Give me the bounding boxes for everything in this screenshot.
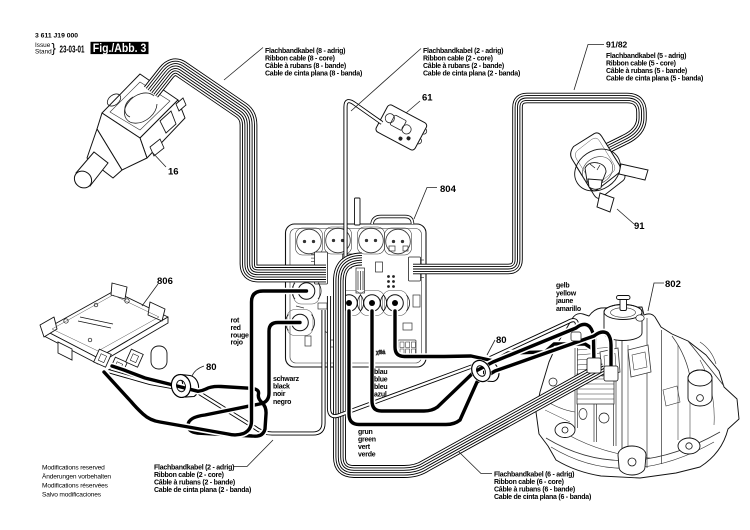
svg-text:black: black bbox=[273, 384, 290, 391]
svg-text:802: 802 bbox=[665, 279, 681, 290]
svg-text:Câble à rubans (5 - bande): Câble à rubans (5 - bande) bbox=[606, 68, 687, 75]
svg-text:blue: blue bbox=[374, 377, 388, 384]
svg-text:verde: verde bbox=[358, 452, 376, 459]
svg-text:Flachbandkabel (6 - adrig): Flachbandkabel (6 - adrig) bbox=[494, 472, 574, 479]
svg-text:Câble à rubans (2 - bande): Câble à rubans (2 - bande) bbox=[154, 480, 235, 487]
svg-text:Cable de cinta plana (5 - band: Cable de cinta plana (5 - banda) bbox=[606, 76, 703, 83]
svg-text:rot: rot bbox=[231, 318, 241, 325]
svg-text:Fig./Abb. 3: Fig./Abb. 3 bbox=[93, 43, 147, 55]
svg-text:80: 80 bbox=[206, 362, 217, 373]
svg-text:grun: grun bbox=[358, 429, 373, 436]
svg-text:jaune: jaune bbox=[555, 298, 573, 305]
svg-text:azul: azul bbox=[374, 392, 387, 399]
svg-text:vert: vert bbox=[358, 444, 371, 451]
svg-text:3 611 J19 000: 3 611 J19 000 bbox=[35, 33, 78, 40]
svg-text:80: 80 bbox=[496, 335, 507, 346]
svg-text:16: 16 bbox=[168, 167, 179, 178]
svg-text:Modifications reserved: Modifications reserved bbox=[42, 465, 105, 472]
svg-text:Flachbandkabel (5 - adrig): Flachbandkabel (5 - adrig) bbox=[606, 53, 686, 60]
svg-text:bleu: bleu bbox=[374, 384, 387, 391]
svg-text:red: red bbox=[231, 325, 241, 332]
svg-text:91: 91 bbox=[634, 221, 645, 232]
svg-text:χfŝȧ: χfŝȧ bbox=[376, 350, 386, 356]
svg-text:Ribbon cable (5 - core): Ribbon cable (5 - core) bbox=[606, 61, 676, 68]
svg-text:Ribbon cable (2 - core): Ribbon cable (2 - core) bbox=[154, 472, 224, 479]
svg-text:schwarz: schwarz bbox=[273, 376, 300, 383]
svg-text:91/82: 91/82 bbox=[606, 40, 628, 50]
svg-text:Flachbandkabel (8 - adrig): Flachbandkabel (8 - adrig) bbox=[265, 48, 345, 55]
svg-text:green: green bbox=[358, 437, 376, 444]
svg-text:rojo: rojo bbox=[231, 340, 243, 347]
svg-text:noir: noir bbox=[273, 391, 286, 398]
svg-text:804: 804 bbox=[440, 184, 457, 195]
svg-text:Ribbon cable (2 - core): Ribbon cable (2 - core) bbox=[423, 56, 493, 63]
svg-text:Flachbandkabel (2 - adrig): Flachbandkabel (2 - adrig) bbox=[423, 48, 503, 55]
svg-text:Cable de cinta plana (2 - band: Cable de cinta plana (2 - banda) bbox=[423, 71, 520, 78]
svg-text:Änderungen vorbehalten: Änderungen vorbehalten bbox=[42, 473, 111, 481]
svg-text:Cable de cinta plana (6 - band: Cable de cinta plana (6 - banda) bbox=[494, 494, 591, 501]
svg-text:Câble à rubans (8 - bande): Câble à rubans (8 - bande) bbox=[265, 63, 346, 70]
svg-text:yellow: yellow bbox=[556, 290, 577, 297]
svg-text:806: 806 bbox=[157, 276, 173, 287]
svg-text:Stand: Stand bbox=[35, 49, 52, 56]
svg-text:}: } bbox=[52, 41, 57, 56]
svg-text:Flachbandkabel (2 - adrig): Flachbandkabel (2 - adrig) bbox=[154, 465, 234, 472]
svg-text:23-03-01: 23-03-01 bbox=[60, 43, 85, 55]
svg-text:rouge: rouge bbox=[231, 332, 250, 339]
svg-text:Câble à rubans (2 - bande): Câble à rubans (2 - bande) bbox=[423, 63, 504, 70]
svg-text:Cable de cinta plana (8 - band: Cable de cinta plana (8 - banda) bbox=[265, 71, 362, 78]
svg-text:negro: negro bbox=[273, 399, 291, 406]
svg-text:amarillo: amarillo bbox=[556, 306, 581, 313]
svg-text:Salvo modificaciones: Salvo modificaciones bbox=[42, 492, 102, 499]
svg-text:gelb: gelb bbox=[556, 283, 569, 290]
svg-text:Ribbon cable (8 - core): Ribbon cable (8 - core) bbox=[265, 56, 335, 63]
svg-text:Modifications réservées: Modifications réservées bbox=[42, 483, 109, 490]
svg-text:61: 61 bbox=[422, 93, 433, 104]
svg-text:Câble à rubans (6 - bande): Câble à rubans (6 - bande) bbox=[494, 487, 575, 494]
svg-text:Ribbon cable (6 - core): Ribbon cable (6 - core) bbox=[494, 479, 564, 486]
svg-text:blau: blau bbox=[374, 369, 387, 376]
svg-text:Cable de cinta plana (2 - band: Cable de cinta plana (2 - banda) bbox=[154, 487, 251, 494]
